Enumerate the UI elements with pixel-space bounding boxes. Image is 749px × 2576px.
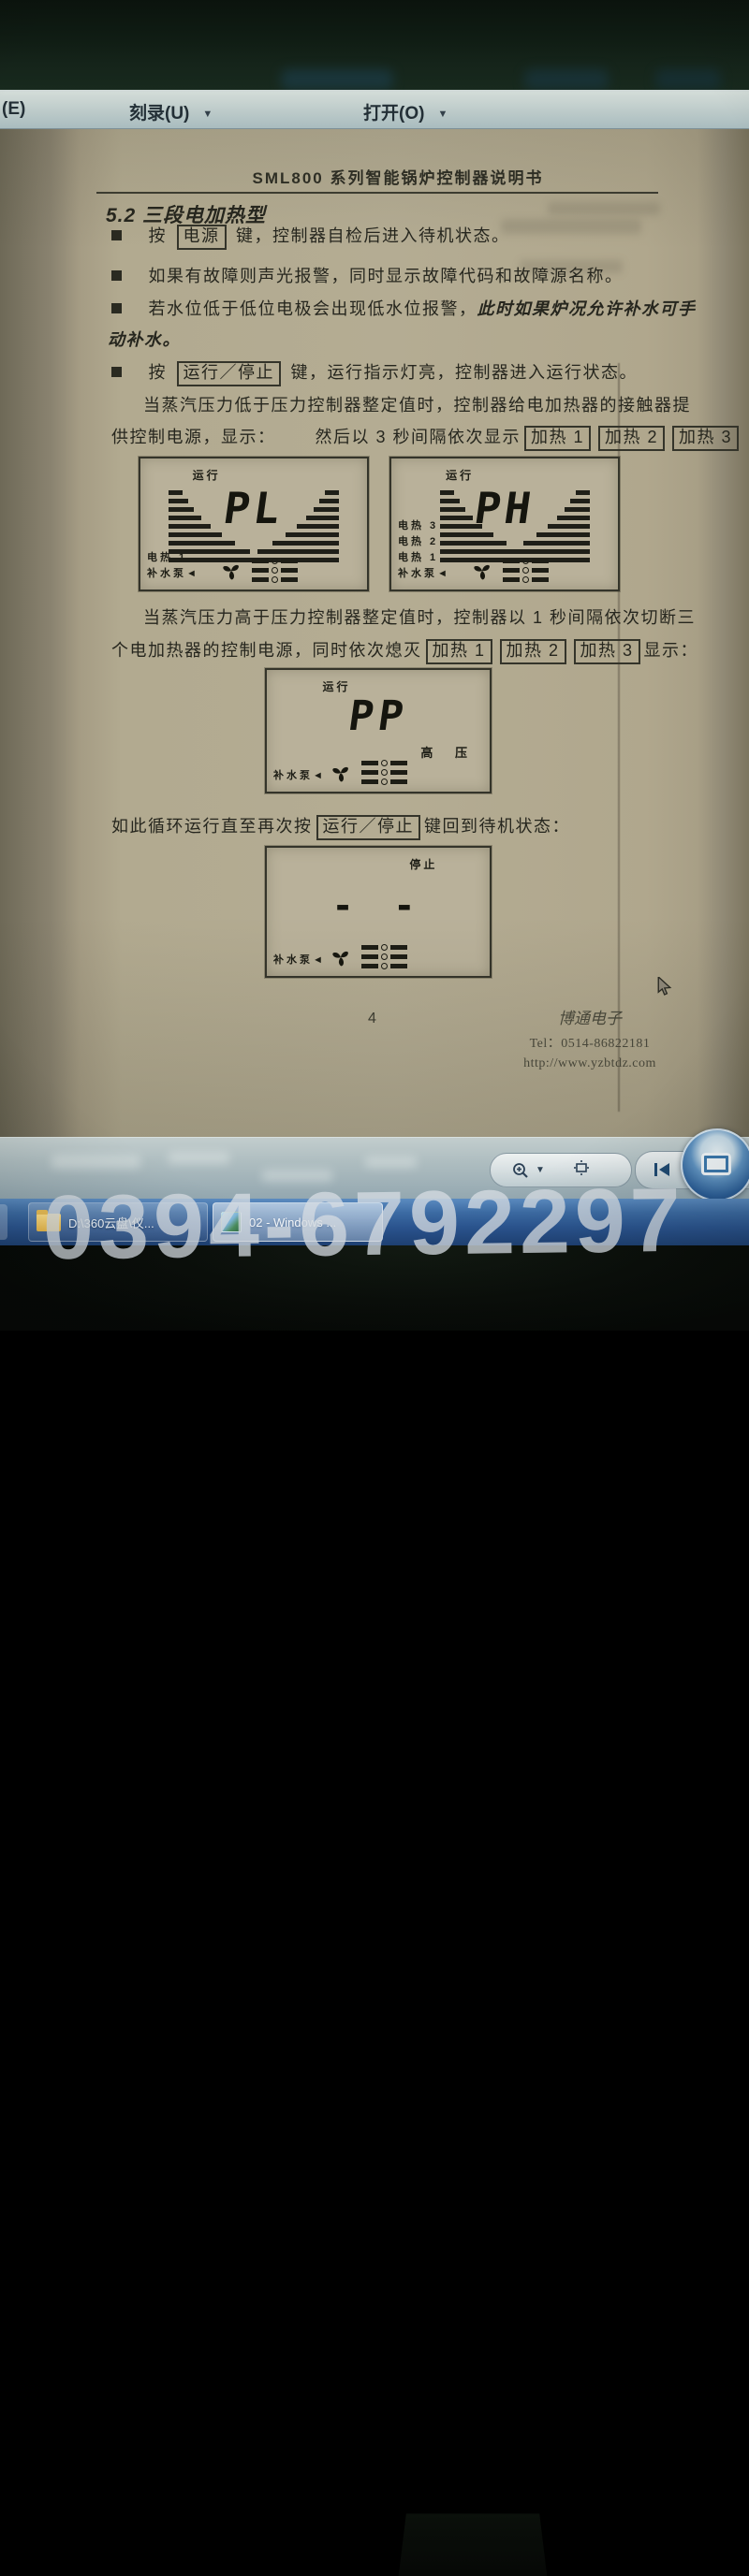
text: 个电加热器的控制电源，同时依次熄灭 [111,641,422,660]
lcd-left-labels: 电热 3 电热 2 电热 1 补水泵◄ [398,518,450,582]
text: 显示： [644,641,699,660]
photo-viewer-canvas[interactable]: SML800 系列智能锅炉控制器说明书 5.2 三段电加热型 按 电源 键，控制… [0,129,749,1137]
paragraph-high-pressure: 当蒸汽压力高于压力控制器整定值时，控制器以 1 秒间隔依次切断三 [143,604,696,629]
bezel-reflection [655,69,721,90]
bezel-reflection [524,69,609,90]
heater-bars-icon [361,944,407,969]
page-number: 4 [368,1011,376,1027]
text: 键回到待机状态： [424,817,570,836]
paragraph-loop: 如此循环运行直至再次按运行／停止键回到待机状态： [111,813,570,840]
company-phone: Tel：0514-86822181 [482,1033,698,1052]
text: 按 [149,226,168,245]
company-name: 博通电子 [482,1005,698,1028]
heater-bars-icon [503,558,549,583]
header-rule [96,192,658,194]
menu-item-e[interactable]: (E) [2,99,25,120]
company-url: http://www.yzbtdz.com [482,1056,698,1071]
heat3-key-label: 加热 3 [672,426,739,451]
lcd-left-labels: 电热 1 补水泵◄ [147,550,199,582]
heat3-key-label: 加热 3 [574,639,640,664]
bullet-low-water: 若水位低于低位电极会出现低水位报警，此时如果炉况允许补水可手 [111,296,697,320]
fan-icon [219,559,243,583]
heat2-key-label: 加热 2 [598,426,665,451]
label-feed-pump: 补水泵◄ [273,953,326,968]
label-heater2: 电热 2 [398,534,450,550]
gauge-right [242,490,339,562]
label-feed-pump: 补水泵◄ [398,566,450,582]
text: 键，控制器自检后进入待机状态。 [236,226,510,245]
paragraph-high-pressure-cont: 个电加热器的控制电源，同时依次熄灭加热 1加热 2加热 3显示： [111,637,698,664]
reflection [169,1152,229,1164]
bezel-reflection [281,69,393,90]
slideshow-button[interactable] [681,1128,749,1201]
text: 供控制电源，显示： [111,428,276,446]
bullet-low-water-cont: 动补水。 [108,327,181,351]
label-high-pressure: 高 压 [420,743,477,761]
menu-bar: (E) 刻录(U)▼ 打开(O)▼ [0,92,749,129]
power-key-label: 电源 [177,225,227,250]
fan-icon [329,945,353,969]
lcd-display-pp: 运行 PP 高 压 补水泵◄ [265,668,492,793]
lcd-value-pp: PP [263,692,492,740]
run-stop-key-label: 运行／停止 [316,815,421,840]
monitor-stand [399,2513,548,2576]
paragraph-low-pressure: 当蒸汽压力低于压力控制器整定值时，控制器给电加热器的接触器提 [143,392,691,416]
page-bleedthrough [501,219,641,234]
gauge-right [493,490,590,562]
mouse-cursor-icon [656,977,672,1000]
heater-bars-icon [361,760,407,785]
lcd-status-run: 运行 [446,467,474,483]
fan-icon [470,559,494,583]
taskbar-edge-button[interactable] [0,1204,7,1240]
monitor-photo: (E) 刻录(U)▼ 打开(O)▼ SML800 系列智能锅炉控制器说明书 5.… [0,0,749,1331]
text-italic: 此时如果炉况允许补水可手 [477,299,697,318]
lcd-value-dashes: - - [267,885,490,926]
menu-item-burn[interactable]: 刻录(U)▼ [129,99,213,124]
page-bleedthrough [548,202,660,215]
lcd-status-run: 运行 [193,467,221,483]
text: 如此循环运行直至再次按 [111,817,313,836]
run-stop-key-label: 运行／停止 [177,361,282,386]
menu-item-label: 打开(O) [363,104,424,124]
text: 键，运行指示灯亮，控制器进入运行状态。 [291,363,639,382]
lcd-left-labels: 补水泵◄ [273,768,326,784]
fan-icon [329,761,353,785]
document-title: SML800 系列智能锅炉控制器说明书 [80,165,716,188]
text: 按 [149,363,168,382]
monitor-bezel-top [0,0,749,92]
lcd-display-ph: 运行 PH 电热 3 电热 2 电热 1 补水泵◄ [389,457,620,591]
watermark: 0394-6792297 [42,1168,685,1280]
document-page: SML800 系列智能锅炉控制器说明书 5.2 三段电加热型 按 电源 键，控制… [80,129,716,1137]
footer-company-block: 博通电子 Tel：0514-86822181 http://www.yzbtdz… [482,1005,698,1071]
label-heater3: 电热 3 [398,518,450,534]
heat1-key-label: 加热 1 [524,426,591,451]
lcd-left-labels: 补水泵◄ [273,953,326,968]
menu-item-open[interactable]: 打开(O)▼ [363,99,448,124]
menu-item-label: 刻录(U) [129,104,189,124]
lcd-status-stop: 停止 [409,856,437,872]
label-feed-pump: 补水泵◄ [147,566,199,582]
heat2-key-label: 加热 2 [500,639,566,664]
chevron-down-icon: ▼ [437,109,448,120]
picture-frame-icon [701,1153,731,1175]
reflection [51,1155,140,1169]
bullet-fault: 如果有故障则声光报警，同时显示故障代码和故障源名称。 [111,263,624,287]
label-feed-pump: 补水泵◄ [273,768,326,784]
bullet-run-stop: 按 运行／停止 键，运行指示灯亮，控制器进入运行状态。 [111,359,638,386]
lcd-display-standby: 停止 - - 补水泵◄ [265,846,492,978]
chevron-down-icon: ▼ [202,109,213,120]
reflection [365,1157,417,1168]
label-heater1: 电热 1 [398,550,450,566]
heat1-key-label: 加热 1 [426,639,492,664]
label-heater1: 电热 1 [147,550,199,566]
text: 若水位低于低位电极会出现低水位报警， [149,299,477,318]
text: 然后以 3 秒间隔依次显示 [316,428,521,446]
lcd-display-pl: 运行 PL 电热 1 补水泵◄ [139,457,369,591]
text: 如果有故障则声光报警，同时显示故障代码和故障源名称。 [149,267,624,285]
bullet-power: 按 电源 键，控制器自检后进入待机状态。 [111,223,510,250]
paragraph-low-pressure-cont: 供控制电源，显示：然后以 3 秒间隔依次显示加热 1加热 2加热 3 [111,424,742,451]
heater-bars-icon [252,558,298,583]
